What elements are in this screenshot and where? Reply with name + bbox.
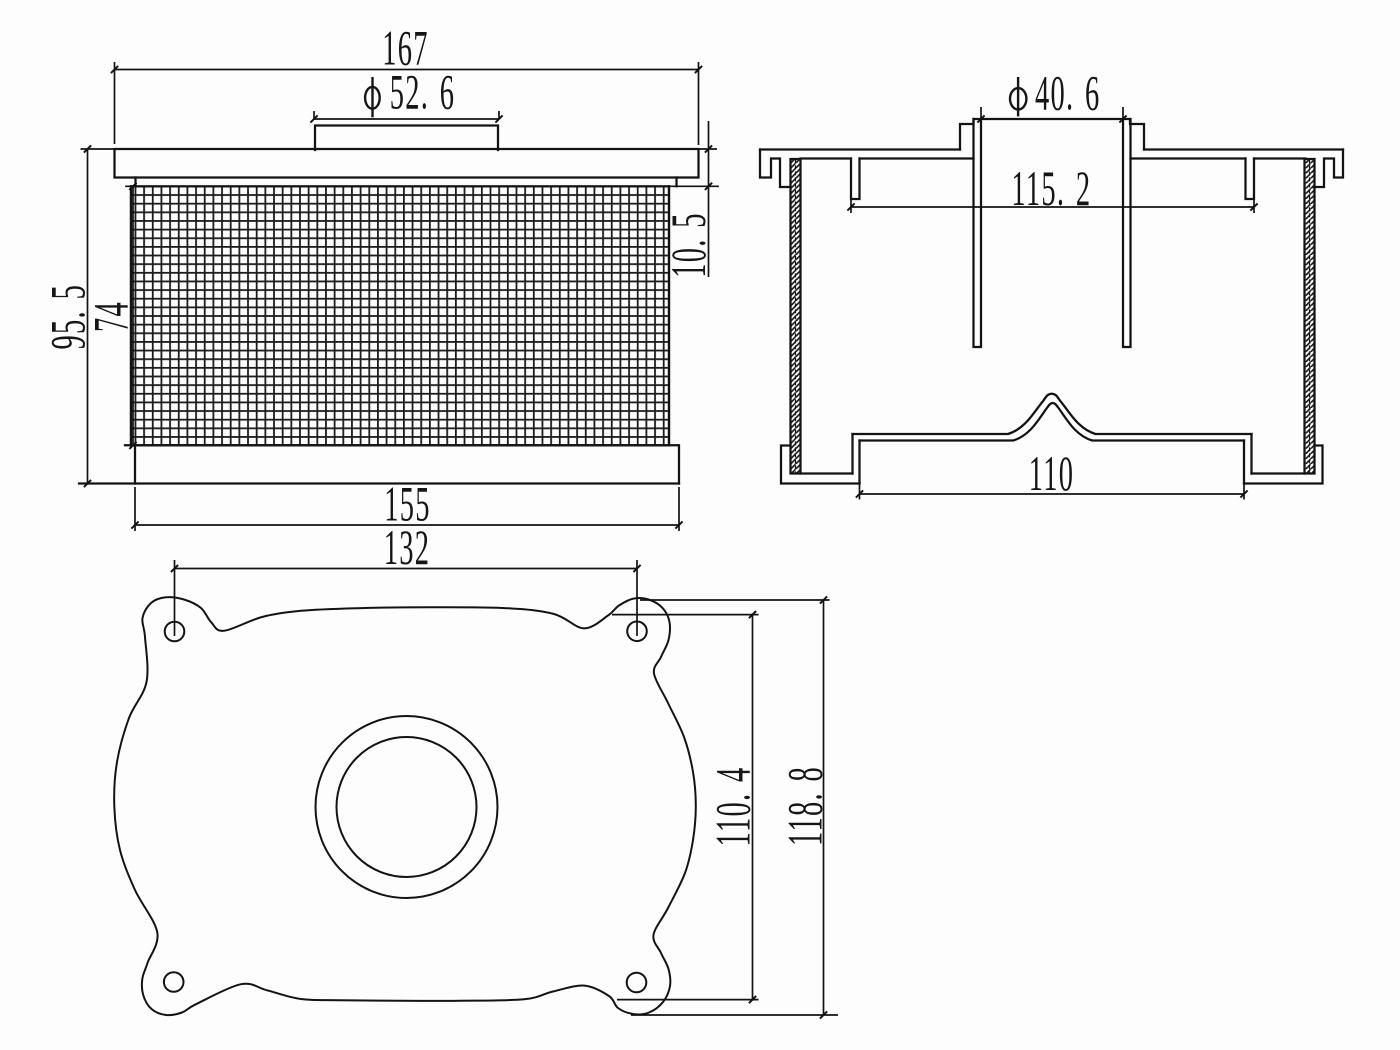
svg-text:118. 8: 118. 8 xyxy=(777,766,832,846)
svg-text:115. 2: 115. 2 xyxy=(1011,161,1091,216)
svg-text:10. 5: 10. 5 xyxy=(661,212,716,278)
svg-text:110: 110 xyxy=(1029,446,1074,501)
svg-text:132: 132 xyxy=(384,520,431,575)
svg-text:52. 6: 52. 6 xyxy=(390,64,456,119)
svg-text:110. 4: 110. 4 xyxy=(705,767,760,847)
svg-text:74: 74 xyxy=(83,301,138,332)
svg-text:40. 6: 40. 6 xyxy=(1035,65,1101,120)
